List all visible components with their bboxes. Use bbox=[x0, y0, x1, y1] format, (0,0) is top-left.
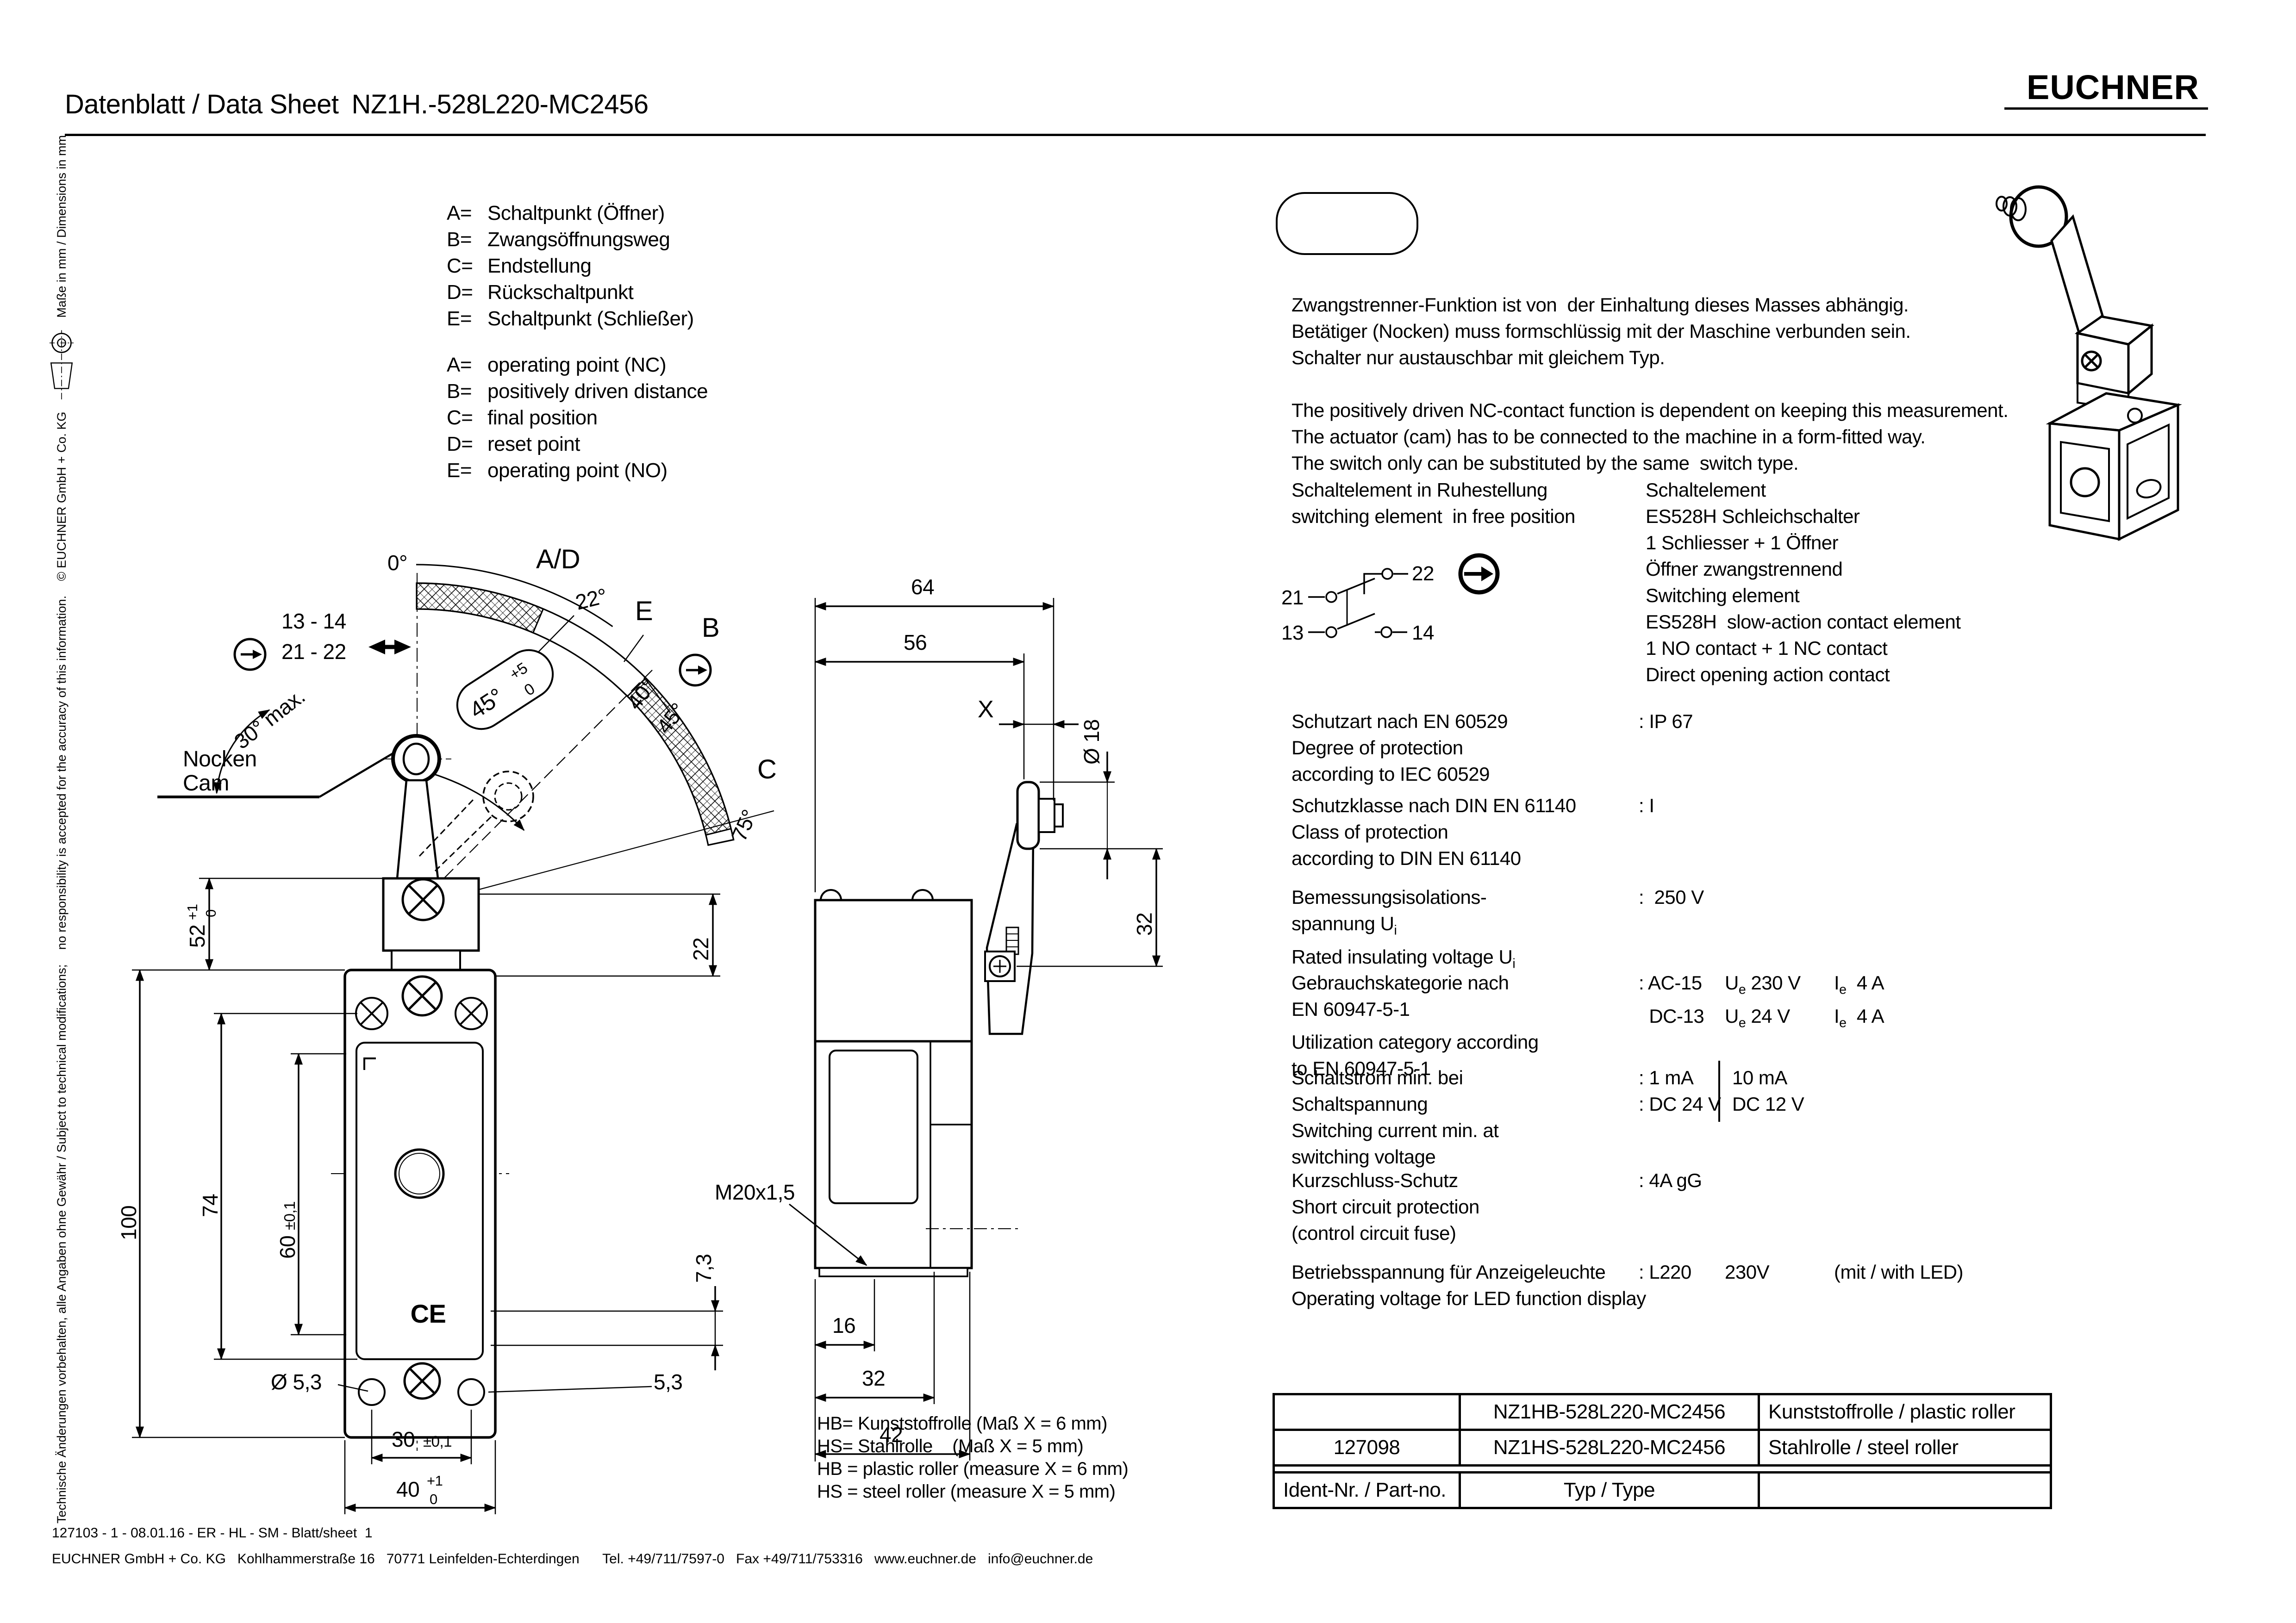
spec-line: Ie 4 A bbox=[1834, 970, 2055, 1003]
dim-40-sub: 0 bbox=[430, 1491, 437, 1507]
dim-32: 32 bbox=[862, 1366, 885, 1390]
angle-ad-label: A/D bbox=[536, 544, 580, 574]
switching-title-de: Schaltelement in Ruhestellung bbox=[1291, 477, 1575, 503]
table-double-rule bbox=[1275, 1467, 2050, 1474]
dim-60: 60 ±0,1 bbox=[275, 1201, 299, 1259]
legend-key: B= bbox=[447, 226, 487, 253]
svg-text:±0,1: ±0,1 bbox=[281, 1201, 298, 1230]
svg-text:52: 52 bbox=[185, 925, 209, 948]
spec-line: Switching current min. at bbox=[1291, 1117, 1643, 1144]
table-cell-part-no: 127098 bbox=[1275, 1431, 1461, 1467]
spec-value-switching-current: : 1 mA : DC 24 V 10 mA DC 12 V bbox=[1639, 1064, 2055, 1122]
angle-22-label: 22° bbox=[573, 584, 610, 615]
dim-dia-18: Ø 18 bbox=[1079, 719, 1104, 765]
table-cell-type-hs: NZ1HS-528L220-MC2456 bbox=[1461, 1431, 1760, 1467]
spec-line: Ie 4 A bbox=[1834, 1003, 2055, 1036]
spec-line: Utilization category according bbox=[1291, 1029, 1643, 1055]
spec-value-short-circuit: : 4A gG bbox=[1639, 1167, 2055, 1194]
dim-16: 16 bbox=[832, 1313, 855, 1337]
dim-52: 52 +1 0 bbox=[184, 904, 219, 948]
spec-line: Kurzschluss-Schutz bbox=[1291, 1167, 1643, 1194]
note-line: The positively driven NC-contact functio… bbox=[1291, 397, 2008, 423]
note-line: Schalter nur austauschbar mit gleichem T… bbox=[1291, 344, 1911, 371]
spec-label-short-circuit: Kurzschluss-Schutz Short circuit protect… bbox=[1291, 1167, 1643, 1246]
legend-text: Schaltpunkt (Schließer) bbox=[487, 305, 708, 332]
spec-line: DC 12 V bbox=[1732, 1091, 2055, 1117]
notes-english: The positively driven NC-contact functio… bbox=[1291, 397, 2008, 476]
roller-legend-line: HS = steel roller (measure X = 5 mm) bbox=[817, 1480, 1128, 1503]
stamp-placeholder bbox=[1276, 192, 1418, 255]
sidebar-dimensions-note: Maße in mm / Dimensions in mm bbox=[55, 135, 69, 318]
spec-value-led-voltage: : L220 230V (mit / with LED) bbox=[1639, 1259, 2055, 1285]
spec-line: spannung Ui bbox=[1291, 910, 1643, 944]
legend-text: Zwangsöffnungsweg bbox=[487, 226, 708, 253]
dim-40-sup: +1 bbox=[427, 1473, 443, 1489]
angle-c-label: C bbox=[757, 754, 776, 784]
angle-75-label: 75° bbox=[727, 806, 761, 845]
spec-value-insulating-voltage: : 250 V bbox=[1639, 884, 2055, 910]
legend-text: operating point (NC) bbox=[487, 352, 708, 378]
spec-line: Degree of protection bbox=[1291, 734, 1643, 761]
roller-legend-line: HB = plastic roller (measure X = 6 mm) bbox=[817, 1458, 1128, 1480]
spec-value-protection-degree: : IP 67 bbox=[1639, 708, 2055, 734]
spec-line: Class of protection bbox=[1291, 819, 1643, 845]
terminal-22: 22 bbox=[1412, 562, 1434, 585]
dim-30-tol: ±0,1 bbox=[423, 1433, 452, 1450]
sidebar-copyright: © EUCHNER GmbH + Co. KG bbox=[55, 412, 69, 581]
switching-title-en: switching element in free position bbox=[1291, 503, 1575, 529]
footer-company: EUCHNER GmbH + Co. KG Kohlhammerstraße 1… bbox=[52, 1551, 1093, 1567]
spec-line: Betriebsspannung für Anzeigeleuchte bbox=[1291, 1259, 1671, 1285]
table-cell-roller-hs: Stahlrolle / steel roller bbox=[1760, 1431, 2050, 1467]
switching-line: 1 NO contact + 1 NC contact bbox=[1646, 635, 1961, 661]
switching-element-description: Schaltelement ES528H Schleichschalter 1 … bbox=[1646, 477, 1961, 688]
header-rule bbox=[65, 134, 2206, 136]
legend-key: E= bbox=[447, 457, 487, 484]
dim-74: 74 bbox=[198, 1194, 222, 1217]
spec-label-protection-class: Schutzklasse nach DIN EN 61140 Class of … bbox=[1291, 792, 1643, 871]
note-line: Zwangstrenner-Funktion ist von der Einha… bbox=[1291, 292, 1911, 318]
spec-label-protection-degree: Schutzart nach EN 60529 Degree of protec… bbox=[1291, 708, 1643, 787]
angle-b-label: B bbox=[702, 613, 719, 643]
spec-line: 230V bbox=[1725, 1259, 1834, 1285]
terminal-14: 14 bbox=[1412, 622, 1434, 644]
switching-line: ES528H Schleichschalter bbox=[1646, 503, 1961, 529]
legend-key: E= bbox=[447, 305, 487, 332]
spec-line: Operating voltage for LED function displ… bbox=[1291, 1285, 1671, 1312]
svg-text:32: 32 bbox=[1132, 913, 1156, 936]
terminal-21: 21 bbox=[1281, 586, 1304, 609]
legend-text: reset point bbox=[487, 431, 708, 457]
table-header-empty bbox=[1760, 1474, 2050, 1507]
roller-legend-line: HS= Stahlrolle (Maß X = 5 mm) bbox=[817, 1435, 1128, 1458]
legend-text: Endstellung bbox=[487, 253, 708, 279]
dim-dia-5-3: Ø 5,3 bbox=[271, 1370, 322, 1394]
spec-line: Schutzart nach EN 60529 bbox=[1291, 708, 1643, 734]
title-label: Datenblatt / Data Sheet bbox=[65, 89, 338, 120]
legend: A=Schaltpunkt (Öffner) B=Zwangsöffnungsw… bbox=[447, 200, 708, 484]
legend-text: Rückschaltpunkt bbox=[487, 279, 708, 305]
note-line: Betätiger (Nocken) muss formschlüssig mi… bbox=[1291, 318, 1911, 344]
page-title: Datenblatt / Data SheetNZ1H.-528L220-MC2… bbox=[65, 89, 649, 120]
dim-7-3: 7,3 bbox=[692, 1254, 716, 1283]
ce-mark: CE bbox=[411, 1299, 446, 1328]
dim-40: 40 bbox=[396, 1477, 419, 1501]
spec-line: Ue 24 V bbox=[1725, 1003, 1834, 1036]
direction-arrow-icon bbox=[680, 655, 711, 685]
switching-line: 1 Schliesser + 1 Öffner bbox=[1646, 529, 1961, 556]
svg-text:7,3: 7,3 bbox=[692, 1254, 716, 1283]
spec-line: : DC 24 V bbox=[1639, 1091, 1718, 1117]
mounting-screw-icon bbox=[455, 998, 487, 1029]
cover-screw-icon bbox=[405, 1363, 440, 1399]
legend-text: positively driven distance bbox=[487, 378, 708, 404]
front-view-drawing: 0° A/D 22° E 40° B 45° C 75° 45° +5 0 13… bbox=[117, 544, 776, 1514]
spec-line: Schaltstrom min. bei bbox=[1291, 1064, 1643, 1091]
terminal-13: 13 bbox=[1281, 622, 1304, 644]
cover-screw-icon bbox=[403, 976, 442, 1015]
spec-line: Ue 230 V bbox=[1725, 970, 1834, 1003]
sidebar-disclaimer-de: Technische Änderungen vorbehalten, alle … bbox=[55, 964, 69, 1524]
datasheet-page: Datenblatt / Data SheetNZ1H.-528L220-MC2… bbox=[0, 0, 2296, 1623]
spec-label-led-voltage: Betriebsspannung für Anzeigeleuchte Oper… bbox=[1291, 1259, 1671, 1312]
legend-key: B= bbox=[447, 378, 487, 404]
spec-line: 10 mA bbox=[1732, 1064, 2055, 1091]
switching-line: Öffner zwangstrennend bbox=[1646, 556, 1961, 582]
table-cell-type-hb: NZ1HB-528L220-MC2456 bbox=[1461, 1395, 1760, 1431]
spec-line: (control circuit fuse) bbox=[1291, 1220, 1643, 1246]
head-screw-icon bbox=[403, 879, 443, 920]
dim-5-3: 5,3 bbox=[654, 1370, 682, 1394]
legend-key: D= bbox=[447, 279, 487, 305]
footer-revision: 127103 - 1 - 08.01.16 - ER - HL - SM - B… bbox=[52, 1525, 373, 1541]
angle-0-label: 0° bbox=[387, 551, 407, 575]
sidebar-vertical-text: Technische Änderungen vorbehalten, alle … bbox=[45, 135, 78, 1524]
svg-text:74: 74 bbox=[198, 1194, 222, 1217]
spec-line: EN 60947-5-1 bbox=[1291, 996, 1643, 1022]
spec-label-insulating-voltage: Bemessungsisolations- spannung Ui Rated … bbox=[1291, 884, 1643, 977]
legend-text: Schaltpunkt (Öffner) bbox=[487, 200, 708, 226]
spec-line: (mit / with LED) bbox=[1834, 1259, 2055, 1285]
spec-line: Schutzklasse nach DIN EN 61140 bbox=[1291, 792, 1643, 819]
cam-angle-label: 30° max. bbox=[230, 684, 309, 754]
svg-text:100: 100 bbox=[117, 1206, 141, 1240]
direction-arrow-icon bbox=[235, 639, 265, 670]
direction-arrow-icon bbox=[1460, 555, 1497, 592]
table-header-type: Typ / Type bbox=[1461, 1474, 1760, 1507]
dim-56: 56 bbox=[904, 630, 927, 654]
roller-type-legend: HB= Kunststoffrolle (Maß X = 6 mm) HS= S… bbox=[817, 1412, 1128, 1503]
svg-text:Ø 18: Ø 18 bbox=[1079, 719, 1104, 765]
spec-line: Gebrauchskategorie nach bbox=[1291, 970, 1643, 996]
dim-30: 30 bbox=[392, 1427, 415, 1451]
svg-text:0: 0 bbox=[203, 909, 219, 917]
contact-range-13-14: 13 - 14 bbox=[281, 609, 346, 633]
table-cell bbox=[1275, 1395, 1461, 1431]
table-header-ident: Ident-Nr. / Part-no. bbox=[1275, 1474, 1461, 1507]
mounting-hole bbox=[359, 1379, 385, 1405]
angle-e-label: E bbox=[635, 596, 653, 626]
spec-line: according to DIN EN 61140 bbox=[1291, 845, 1643, 871]
switching-line: ES528H slow-action contact element bbox=[1646, 609, 1961, 635]
technical-drawings: 0° A/D 22° E 40° B 45° C 75° 45° +5 0 13… bbox=[93, 523, 1273, 1550]
mounting-hole bbox=[458, 1379, 484, 1405]
spec-value-utilization-category: : AC-15 Ue 230 V Ie 4 A DC-13 Ue 24 V Ie… bbox=[1639, 970, 2055, 1037]
svg-text:22: 22 bbox=[689, 938, 713, 961]
spec-line: Bemessungsisolations- bbox=[1291, 884, 1643, 910]
dim-32-vertical: 32 bbox=[1132, 913, 1156, 936]
spec-line: switching voltage bbox=[1291, 1144, 1643, 1170]
spec-line: Schaltspannung bbox=[1291, 1091, 1643, 1117]
switching-line: Direct opening action contact bbox=[1646, 661, 1961, 688]
contact-diagram: 21 13 22 14 bbox=[1268, 546, 1528, 653]
spec-line: DC-13 bbox=[1639, 1003, 1725, 1036]
note-line: The actuator (cam) has to be connected t… bbox=[1291, 423, 2008, 450]
spec-line: : L220 bbox=[1639, 1259, 1725, 1285]
title-part-number: NZ1H.-528L220-MC2456 bbox=[351, 89, 648, 120]
legend-key: D= bbox=[447, 431, 487, 457]
spec-label-switching-current: Schaltstrom min. bei Schaltspannung Swit… bbox=[1291, 1064, 1643, 1170]
dim-100: 100 bbox=[117, 1206, 141, 1240]
roller-legend-line: HB= Kunststoffrolle (Maß X = 6 mm) bbox=[817, 1412, 1128, 1435]
switching-element-left-title: Schaltelement in Ruhestellung switching … bbox=[1291, 477, 1575, 529]
legend-text: operating point (NO) bbox=[487, 457, 708, 484]
logo-underline bbox=[2004, 107, 2208, 110]
legend-key: C= bbox=[447, 404, 487, 431]
angle-tolerance-pill: 45° +5 0 bbox=[448, 641, 562, 738]
double-arrow-icon bbox=[368, 640, 411, 654]
switching-line: Switching element bbox=[1646, 582, 1961, 609]
spec-line: Short circuit protection bbox=[1291, 1194, 1643, 1220]
sidebar-disclaimer-en: no responsibility is accepted for the ac… bbox=[55, 596, 69, 950]
spec-line: according to IEC 60529 bbox=[1291, 761, 1643, 787]
contact-range-21-22: 21 - 22 bbox=[281, 640, 346, 664]
dim-m20: M20x1,5 bbox=[715, 1180, 795, 1204]
dim-64: 64 bbox=[911, 575, 934, 599]
svg-text:+1: +1 bbox=[184, 904, 200, 920]
spec-line: : AC-15 bbox=[1639, 970, 1725, 1003]
svg-text:60: 60 bbox=[275, 1236, 299, 1259]
mounting-screw-icon bbox=[356, 998, 387, 1029]
legend-text: final position bbox=[487, 404, 708, 431]
lever-clamp-screw-icon bbox=[985, 951, 1015, 981]
cam-label-en: Cam bbox=[183, 771, 229, 796]
switching-line: Schaltelement bbox=[1646, 477, 1961, 503]
table-cell-roller-hb: Kunststoffrolle / plastic roller bbox=[1760, 1395, 2050, 1431]
dim-22: 22 bbox=[689, 938, 713, 961]
legend-key: C= bbox=[447, 253, 487, 279]
brand-logo: EUCHNER bbox=[2027, 68, 2199, 107]
part-number-table: NZ1HB-528L220-MC2456 Kunststoffrolle / p… bbox=[1273, 1393, 2052, 1509]
legend-key: A= bbox=[447, 200, 487, 226]
note-line: The switch only can be substituted by th… bbox=[1291, 450, 2008, 476]
spec-line: : 1 mA bbox=[1639, 1064, 1718, 1091]
side-view-drawing: 64 56 X Ø 18 32 M20x1,5 bbox=[715, 575, 1163, 1461]
dim-x: X bbox=[978, 696, 993, 723]
product-illustration bbox=[1981, 153, 2203, 541]
legend-key: A= bbox=[447, 352, 487, 378]
projection-symbol-icon bbox=[45, 330, 78, 399]
spec-value-protection-class: : I bbox=[1639, 792, 2055, 819]
notes-german: Zwangstrenner-Funktion ist von der Einha… bbox=[1291, 292, 1911, 371]
